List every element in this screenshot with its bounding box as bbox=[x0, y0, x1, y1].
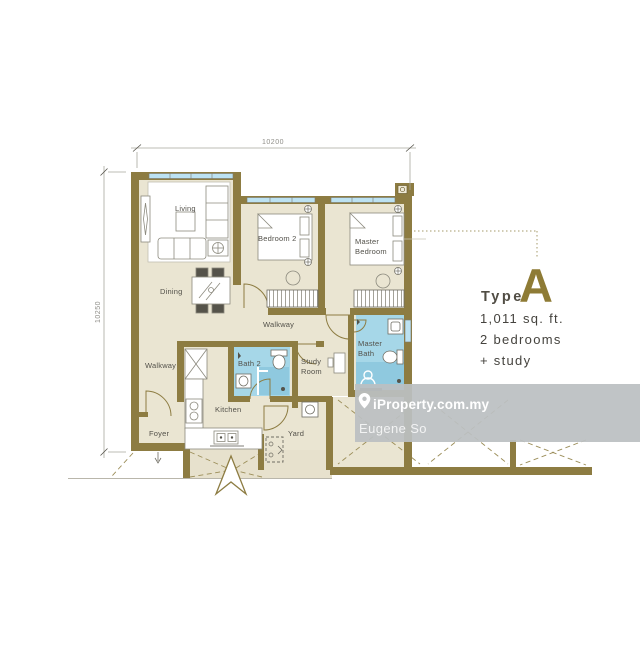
label-yard: Yard bbox=[288, 429, 304, 438]
pillow bbox=[300, 217, 309, 235]
dimension-height-label: 10250 bbox=[95, 301, 102, 323]
floorplan-page: 10200 10250 Living Dining Bedroom 2 Mast… bbox=[0, 0, 640, 640]
pillow bbox=[393, 241, 402, 261]
unit-bedrooms: 2 bedrooms bbox=[480, 332, 562, 347]
foyer-entry-mark bbox=[155, 452, 161, 463]
label-bedroom2: Bedroom 2 bbox=[258, 234, 297, 243]
pillow bbox=[393, 216, 402, 236]
toilet-tank bbox=[397, 350, 403, 364]
dining-chair bbox=[196, 268, 208, 277]
toilet bbox=[273, 355, 285, 369]
watermark-agent: Eugene So bbox=[359, 421, 427, 436]
label-master-1: Master bbox=[355, 237, 379, 246]
shower-head bbox=[281, 387, 285, 391]
label-study-2: Room bbox=[301, 367, 322, 376]
stove bbox=[186, 399, 202, 423]
unit-area: 1,011 sq. ft. bbox=[480, 311, 564, 326]
desk bbox=[334, 353, 345, 373]
living-furniture bbox=[141, 182, 230, 262]
label-kitchen: Kitchen bbox=[215, 405, 241, 414]
wardrobe bbox=[354, 290, 404, 307]
floorplan-image: 10200 10250 Living Dining Bedroom 2 Mast… bbox=[0, 0, 640, 640]
label-bath2: Bath 2 bbox=[238, 359, 261, 368]
kitchen-sink bbox=[214, 431, 238, 444]
type-leader-line bbox=[404, 231, 537, 257]
unit-extra: + study bbox=[480, 353, 531, 368]
dimension-width-label: 10200 bbox=[262, 139, 284, 146]
dining-table bbox=[192, 277, 230, 304]
sofa bbox=[158, 238, 206, 259]
type-prefix: Type bbox=[481, 289, 524, 305]
desk-chair bbox=[328, 358, 333, 367]
type-letter: A bbox=[519, 259, 553, 312]
label-master-bath-1: Master bbox=[358, 339, 382, 348]
dining-chair bbox=[212, 304, 224, 313]
water-heater bbox=[302, 402, 318, 417]
label-dining: Dining bbox=[160, 287, 182, 296]
pillow bbox=[300, 239, 309, 257]
dining-chair bbox=[196, 304, 208, 313]
label-master-2: Bedroom bbox=[355, 247, 387, 256]
label-walkway-left: Walkway bbox=[145, 361, 176, 370]
toilet bbox=[383, 351, 397, 363]
ac-ledge bbox=[398, 186, 407, 194]
chaise-sofa bbox=[206, 186, 228, 238]
watermark-brand: iProperty.com.my bbox=[373, 397, 490, 412]
dining-chair bbox=[212, 268, 224, 277]
label-walkway-mid: Walkway bbox=[263, 320, 294, 329]
master-furniture bbox=[350, 213, 404, 307]
label-living: Living bbox=[175, 204, 196, 213]
label-master-bath-2: Bath bbox=[358, 349, 374, 358]
wardrobe bbox=[267, 290, 318, 307]
coffee-table bbox=[176, 212, 195, 231]
label-study-1: Study bbox=[301, 357, 321, 366]
label-foyer: Foyer bbox=[149, 429, 169, 438]
unit-type-block: Type A 1,011 sq. ft. 2 bedrooms + study bbox=[480, 259, 564, 368]
watermark: iProperty.com.my Eugene So bbox=[355, 384, 640, 442]
dimension-left bbox=[101, 166, 127, 458]
